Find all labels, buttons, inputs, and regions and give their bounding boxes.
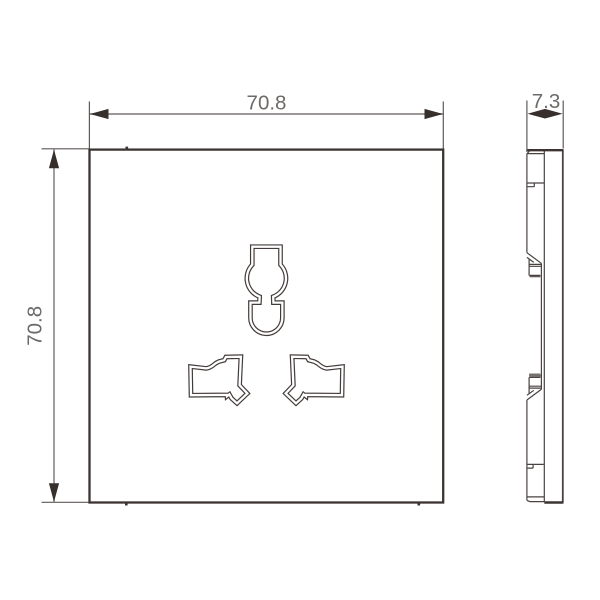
svg-text:70.8: 70.8	[24, 306, 47, 346]
svg-text:70.8: 70.8	[247, 92, 287, 115]
svg-text:7.3: 7.3	[532, 90, 561, 113]
